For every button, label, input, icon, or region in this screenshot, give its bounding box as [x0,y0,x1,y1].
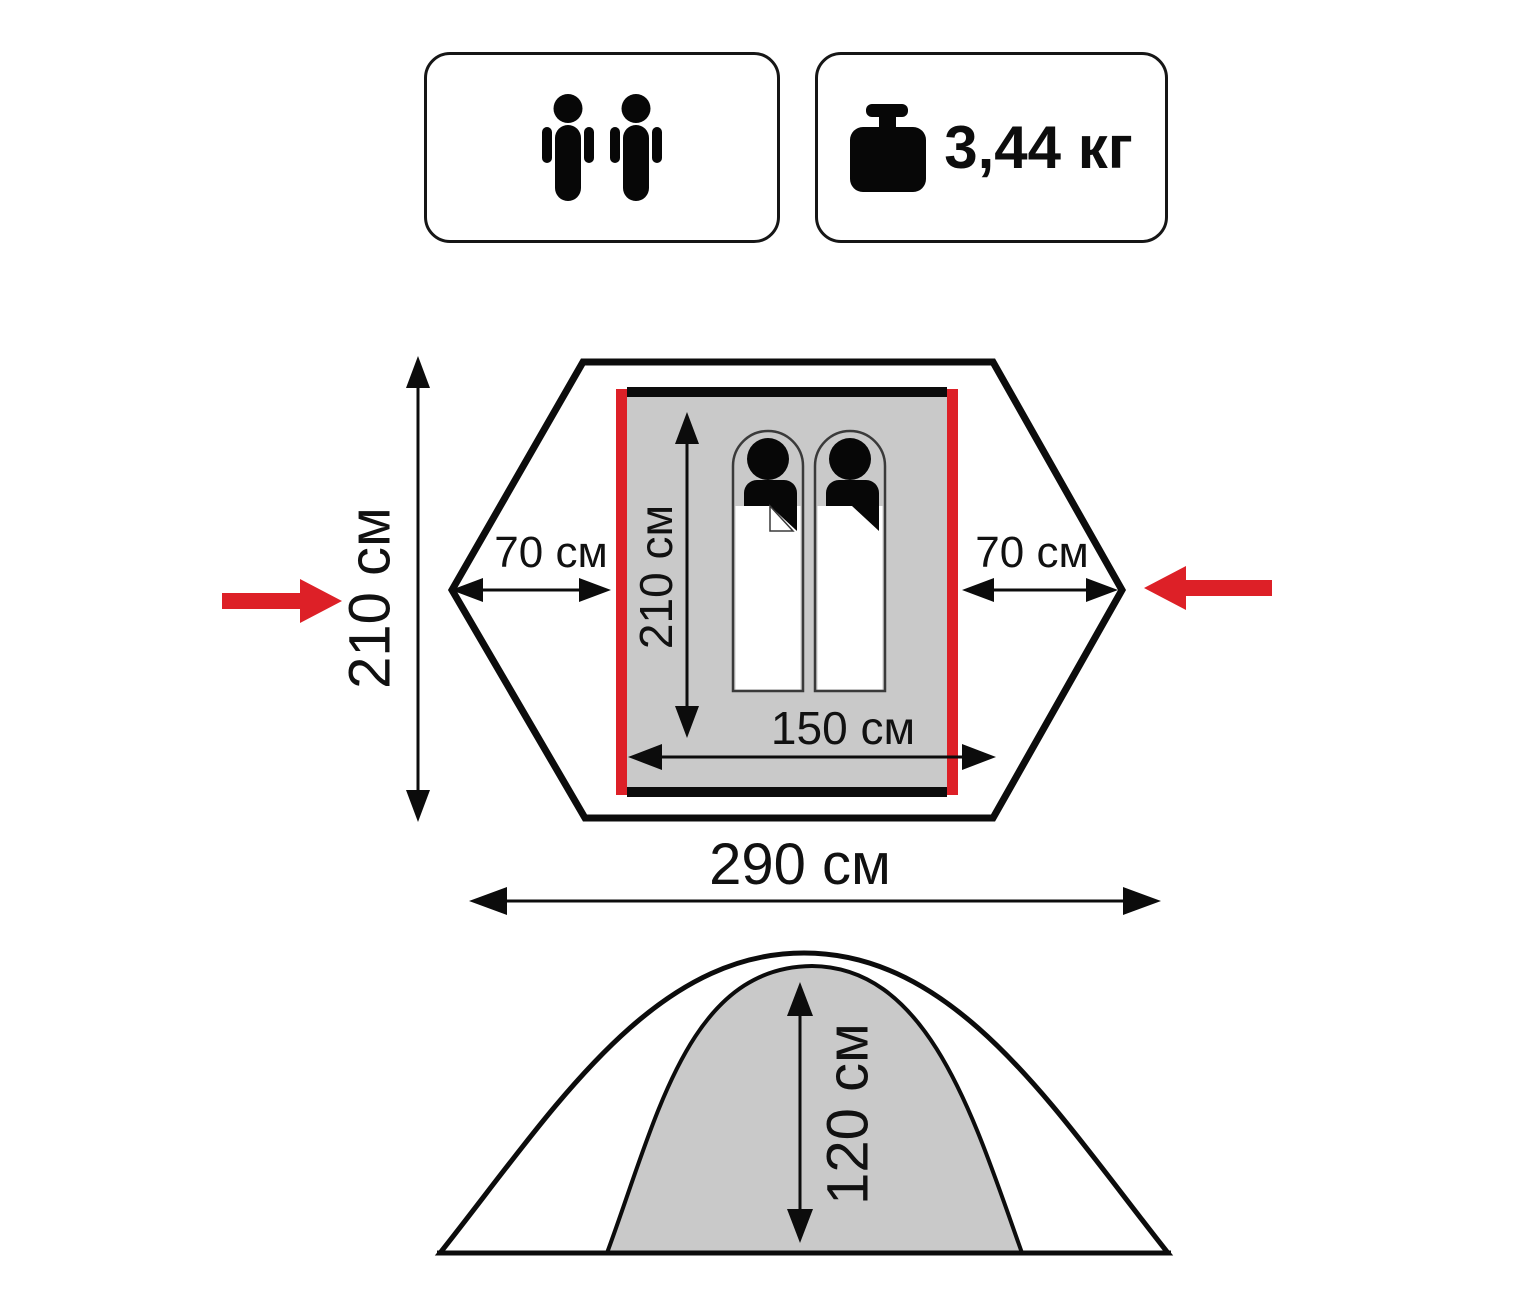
dimension-outer-length: 210 см [337,356,430,822]
person-head [747,438,789,480]
sleeping-bag-body [736,506,801,690]
inner-width-label: 150 см [771,702,915,754]
inner-tent-bottom-bar [627,787,947,797]
person-head [829,438,871,480]
arrowhead-up [406,356,430,388]
entrance-arrow-right [1144,566,1272,610]
outer-length-label: 210 см [337,507,402,689]
sleeping-bag-body [818,506,883,690]
arrowhead-down [406,790,430,822]
entrance-arrow-left [222,579,342,623]
arrowhead-left [469,887,507,915]
dimension-outer-width: 290 см [469,832,1161,915]
tent-spec-diagram: 3,44 кг [0,0,1536,1295]
inner-tent-top-bar [627,387,947,397]
diagram-canvas: 210 см 210 см 70 см 70 см 15 [0,0,1536,1295]
inner-height-label: 120 см [815,1023,880,1205]
entrance-zipper-left [616,389,627,795]
entrance-zipper-right [947,389,958,795]
vestibule-right-label: 70 см [975,528,1088,577]
arrowhead-right [1123,887,1161,915]
inner-length-label: 210 см [630,505,682,649]
outer-width-label: 290 см [709,832,891,897]
vestibule-left-label: 70 см [494,528,607,577]
